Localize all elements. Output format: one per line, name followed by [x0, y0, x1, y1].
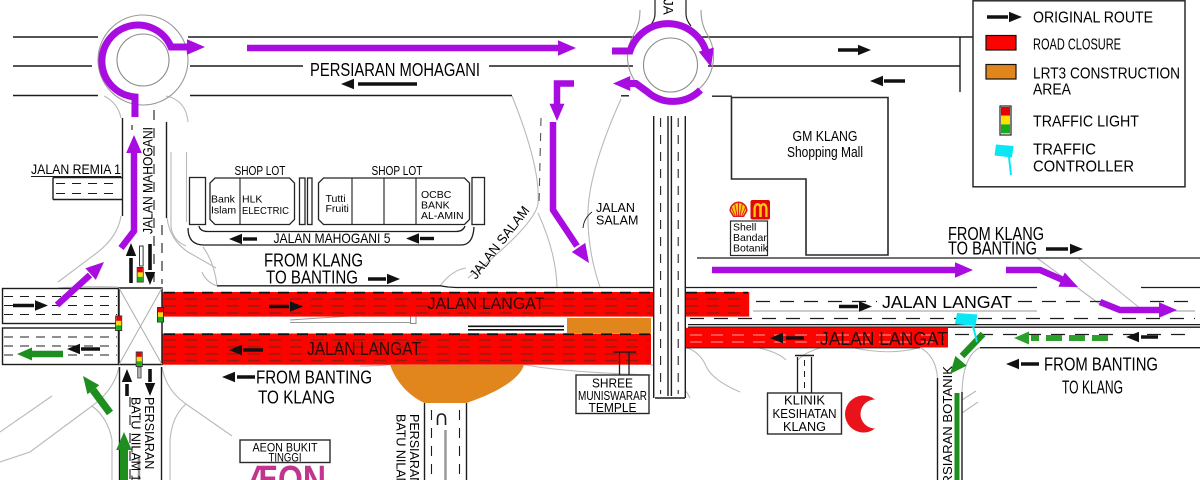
svg-text:ROAD CLOSURE: ROAD CLOSURE — [1033, 37, 1121, 54]
svg-text:PERSIARANBATU NILAM 1: PERSIARANBATU NILAM 1 — [129, 397, 157, 480]
svg-text:TO BANTING: TO BANTING — [266, 268, 358, 288]
svg-text:JALAN LANGAT: JALAN LANGAT — [428, 294, 545, 313]
svg-text:Fruiti: Fruiti — [326, 203, 349, 215]
svg-text:AREA: AREA — [1033, 82, 1072, 99]
svg-text:JALAN LANGAT: JALAN LANGAT — [820, 328, 948, 349]
svg-text:FROM BANTING: FROM BANTING — [1044, 355, 1158, 375]
svg-text:SHOP LOT: SHOP LOT — [372, 163, 423, 178]
svg-text:TRAFFIC: TRAFFIC — [1033, 142, 1096, 159]
svg-text:GM KLANG: GM KLANG — [793, 129, 858, 145]
svg-text:JALAN LANGAT: JALAN LANGAT — [307, 339, 421, 359]
svg-text:Botanik: Botanik — [733, 243, 769, 255]
svg-text:Shopping Mall: Shopping Mall — [787, 145, 863, 161]
svg-text:TO KLANG: TO KLANG — [1062, 378, 1123, 398]
svg-text:JALAN LANGAT: JALAN LANGAT — [882, 292, 1012, 312]
svg-text:PERSIARANBATU NILAM: PERSIARANBATU NILAM — [394, 414, 422, 480]
svg-text:JALAN MAHOGANI 5: JALAN MAHOGANI 5 — [274, 230, 391, 246]
svg-text:HLK: HLK — [242, 194, 262, 206]
svg-text:TEMPLE: TEMPLE — [589, 401, 637, 415]
svg-text:TRAFFIC LIGHT: TRAFFIC LIGHT — [1033, 114, 1139, 131]
svg-text:TINGGI: TINGGI — [269, 453, 302, 465]
svg-text:SALAM: SALAM — [596, 214, 638, 228]
svg-text:SHOP LOT: SHOP LOT — [235, 163, 286, 178]
svg-text:TO BANTING: TO BANTING — [948, 239, 1037, 259]
svg-text:AL-AMIN: AL-AMIN — [421, 210, 464, 222]
svg-text:JALAN MAHOGANI: JALAN MAHOGANI — [141, 127, 156, 234]
svg-text:KLANG: KLANG — [783, 419, 826, 434]
svg-text:JA: JA — [661, 0, 676, 15]
svg-text:JALAN REMIA 1: JALAN REMIA 1 — [31, 161, 121, 177]
svg-text:PERSIARAN BOTANIK: PERSIARAN BOTANIK — [940, 366, 955, 480]
svg-text:ELECTRIC: ELECTRIC — [242, 205, 289, 217]
svg-text:ORIGINAL ROUTE: ORIGINAL ROUTE — [1033, 10, 1153, 27]
svg-text:LRT3 CONSTRUCTION: LRT3 CONSTRUCTION — [1033, 66, 1180, 83]
svg-text:Islam: Islam — [211, 205, 236, 217]
svg-text:CONTROLLER: CONTROLLER — [1033, 159, 1134, 176]
svg-text:FROM BANTING: FROM BANTING — [256, 368, 372, 388]
svg-text:TO KLANG: TO KLANG — [258, 388, 335, 408]
svg-text:PERSIARAN MOHAGANI: PERSIARAN MOHAGANI — [310, 60, 480, 80]
